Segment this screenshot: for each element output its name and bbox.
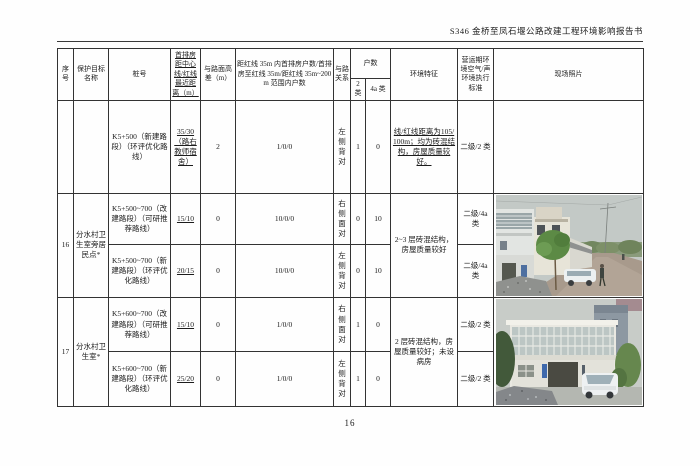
- cell-env-feature: 2~3 层砖混结构，房屋质量较好: [391, 193, 458, 297]
- cell-class2: 1: [351, 352, 366, 407]
- cell-house-counts: 10/0/0: [236, 193, 334, 244]
- cell-photo: [494, 193, 644, 297]
- cell-height-diff: 0: [201, 352, 236, 407]
- cell-road-relation: 左侧背对: [334, 100, 351, 193]
- col-header-target-name: 保护目标名称: [74, 49, 109, 101]
- cell-target-name: 分水村卫生室*: [74, 297, 109, 406]
- cell-standard: 二级/2 类: [458, 352, 494, 407]
- cell-house-counts: 1/0/0: [236, 100, 334, 193]
- col-header-standard: 营运期环境空气/声环境执行标准: [458, 49, 494, 101]
- site-photo-street-houses-van: [496, 195, 642, 296]
- cell-target-name: [74, 100, 109, 193]
- cell-class2: 1: [351, 100, 366, 193]
- cell-road-relation: 右侧面对: [334, 193, 351, 244]
- cell-front-distance: 35/30（路右教师宿舍）: [171, 100, 201, 193]
- cell-stake: K5+500（新建路段）（环评优化路线）: [109, 100, 171, 193]
- cell-front-distance: 20/15: [171, 245, 201, 298]
- site-photo-clinic-building-van: [496, 299, 642, 405]
- col-header-class4a: 4a 类: [366, 79, 391, 101]
- cell-standard: 二级/4a 类: [458, 245, 494, 298]
- cell-photo-empty: [494, 100, 644, 193]
- page-number: 16: [0, 418, 700, 428]
- cell-height-diff: 0: [201, 245, 236, 298]
- cell-target-name: 分水村卫生室旁居民点*: [74, 193, 109, 297]
- cell-class2: 0: [351, 245, 366, 298]
- cell-stake: K5+500~700（改建路段）（可研推荐路线）: [109, 193, 171, 244]
- cell-height-diff: 2: [201, 100, 236, 193]
- cell-height-diff: 0: [201, 193, 236, 244]
- cell-road-relation: 左侧背对: [334, 245, 351, 298]
- col-header-households: 户数: [351, 49, 391, 79]
- row-16-sub-1: 16 分水村卫生室旁居民点* K5+500~700（改建路段）（可研推荐路线） …: [58, 193, 644, 244]
- col-header-photo: 现场照片: [494, 49, 644, 101]
- cell-index: [58, 100, 74, 193]
- cell-road-relation: 右侧面对: [334, 297, 351, 352]
- cell-stake: K5+600~700（新建路段）（环评优化路线）: [109, 352, 171, 407]
- cell-photo: [494, 297, 644, 406]
- row-17-sub-1: 17 分水村卫生室* K5+600~700（改建路段）（可研推荐路线） 15/1…: [58, 297, 644, 352]
- cell-house-counts: 1/0/0: [236, 297, 334, 352]
- cell-class4a: 10: [366, 193, 391, 244]
- protection-targets-table: 序号 保护目标名称 桩号 首排房距中心线/红线最近距离（m） 与路面高差（m） …: [57, 48, 644, 407]
- header-row-1: 序号 保护目标名称 桩号 首排房距中心线/红线最近距离（m） 与路面高差（m） …: [58, 49, 644, 79]
- cell-index: 17: [58, 297, 74, 406]
- cell-house-counts: 10/0/0: [236, 245, 334, 298]
- cell-height-diff: 0: [201, 297, 236, 352]
- cell-standard: 二级/2 类: [458, 297, 494, 352]
- cell-index: 16: [58, 193, 74, 297]
- cell-front-distance: 15/10: [171, 297, 201, 352]
- cell-house-counts: 1/0/0: [236, 352, 334, 407]
- cell-stake: K5+500~700（新建路段）（环评优化路线）: [109, 245, 171, 298]
- cell-class4a: 10: [366, 245, 391, 298]
- cell-front-distance: 15/10: [171, 193, 201, 244]
- cell-env-feature: 2 层砖混结构，房屋质量较好；未设病房: [391, 297, 458, 406]
- col-header-class2: 2 类: [351, 79, 366, 101]
- cell-standard: 二级/4a 类: [458, 193, 494, 244]
- cell-class4a: 0: [366, 352, 391, 407]
- col-header-front-distance: 首排房距中心线/红线最近距离（m）: [171, 49, 201, 101]
- col-header-height-diff: 与路面高差（m）: [201, 49, 236, 101]
- cell-stake: K5+600~700（改建路段）（可研推荐路线）: [109, 297, 171, 352]
- cell-class2: 0: [351, 193, 366, 244]
- col-header-env-feature: 环境特征: [391, 49, 458, 101]
- cell-class4a: 0: [366, 297, 391, 352]
- row-continuation: K5+500（新建路段）（环评优化路线） 35/30（路右教师宿舍） 2 1/0…: [58, 100, 644, 193]
- cell-class4a: 0: [366, 100, 391, 193]
- col-header-road-relation: 与路关系: [334, 49, 351, 101]
- cell-road-relation: 左侧背对: [334, 352, 351, 407]
- cell-class2: 1: [351, 297, 366, 352]
- cell-front-distance: 25/20: [171, 352, 201, 407]
- col-header-stake: 桩号: [109, 49, 171, 101]
- cell-standard: 二级/2 类: [458, 100, 494, 193]
- cell-env-feature: 线/红线距离为105/100m；均为砖混结构，房屋质量较好。: [391, 100, 458, 193]
- col-header-house-counts: 距红线 35m 内首排房户数/首排房至红线 35m/距红线 35m~200m 范…: [236, 49, 334, 101]
- document-header-title: S346 金桥至凤石堰公路改建工程环境影响报告书: [57, 25, 643, 42]
- col-header-index: 序号: [58, 49, 74, 101]
